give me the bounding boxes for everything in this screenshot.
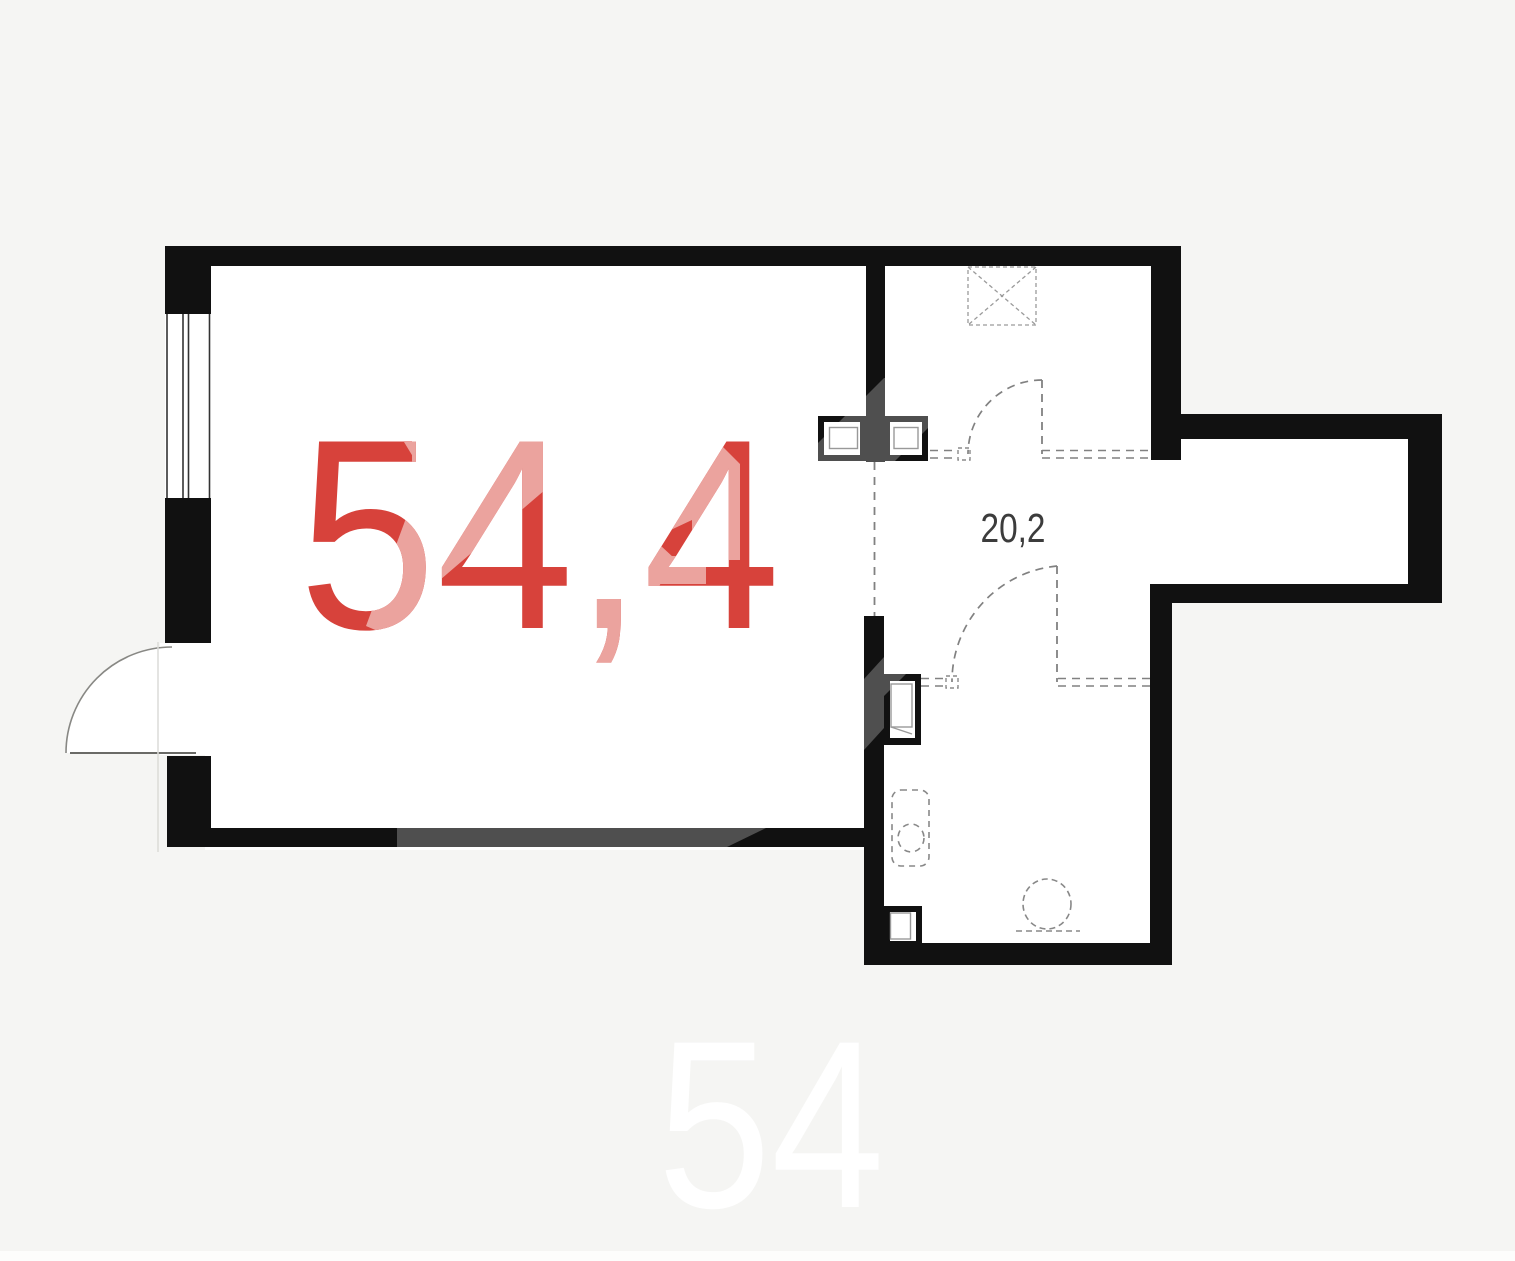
svg-text:20,2: 20,2 [981,505,1046,551]
svg-text:54: 54 [658,991,885,1258]
